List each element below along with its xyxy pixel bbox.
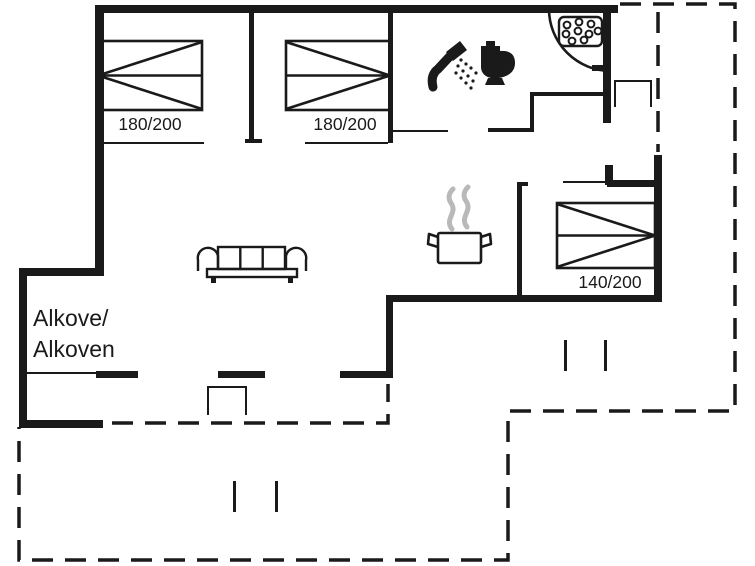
wall-living-right: [386, 295, 393, 378]
threshold-alcove: [23, 372, 98, 374]
floor-plan: 180/200 180/200 140/200 Alkove/ Alkoven: [0, 0, 755, 566]
shower-tray-dots-icon: [559, 17, 602, 46]
threshold-bedroom2: [305, 142, 388, 144]
terrace-inner-dashed: [112, 384, 388, 423]
opening-marks: [233, 340, 607, 512]
bed-size-label: 180/200: [313, 114, 377, 134]
threshold-bathroom: [393, 130, 448, 132]
wall-bath-bottom: [488, 128, 533, 132]
steam-icon: [449, 187, 468, 229]
wall-bedroom-divider-1: [249, 8, 254, 143]
wall-bath-lower-right: [531, 92, 611, 96]
shower-head-icon: [432, 41, 477, 90]
wall-top: [95, 5, 618, 13]
double-bed-icon: [98, 41, 202, 110]
wall-segment: [96, 371, 138, 378]
bathroom-icons: [432, 41, 515, 90]
cooking-pot-icon: [428, 187, 491, 263]
sofa-icon: [198, 247, 306, 283]
wall-bottom-right: [386, 295, 662, 302]
wall-segment: [340, 371, 393, 378]
terrace-step-frame: [208, 387, 246, 415]
threshold-bedroom1: [104, 142, 204, 144]
wall-alcove-step: [19, 268, 104, 276]
door-mark: [564, 340, 567, 371]
bed-size-label: 140/200: [578, 272, 642, 292]
wall-bedroom3-top: [607, 180, 658, 187]
alcove-label-line1: Alkove/: [33, 305, 109, 331]
double-bed-icon: [286, 41, 390, 110]
double-bed-icon: [557, 203, 655, 268]
door-mark: [604, 340, 607, 371]
wall-bath-jog: [530, 92, 534, 132]
wall-left-upper: [95, 5, 104, 276]
wall-bedroom3-left: [517, 182, 522, 296]
alcove-label-line2: Alkoven: [33, 336, 115, 362]
wall-alcove-bottom: [19, 420, 103, 428]
entrance-step-frame: [615, 81, 651, 107]
wall-end-cap: [517, 182, 528, 186]
shower-spray-dots: [454, 58, 477, 89]
beds: [98, 41, 655, 268]
wall-left-lower: [19, 268, 27, 428]
bed-size-label: 180/200: [118, 114, 182, 134]
wall-segment: [218, 371, 265, 378]
floor-plan-canvas: 180/200 180/200 140/200 Alkove/ Alkoven: [0, 0, 755, 566]
shower-corner: [549, 9, 611, 71]
wall-entrance: [603, 5, 611, 123]
door-mark: [275, 481, 278, 512]
threshold-bedroom3: [563, 181, 607, 183]
door-mark: [233, 481, 236, 512]
wall-end-cap: [245, 139, 262, 143]
toilet-icon: [481, 41, 515, 85]
labels: 180/200 180/200 140/200 Alkove/ Alkoven: [33, 114, 642, 362]
